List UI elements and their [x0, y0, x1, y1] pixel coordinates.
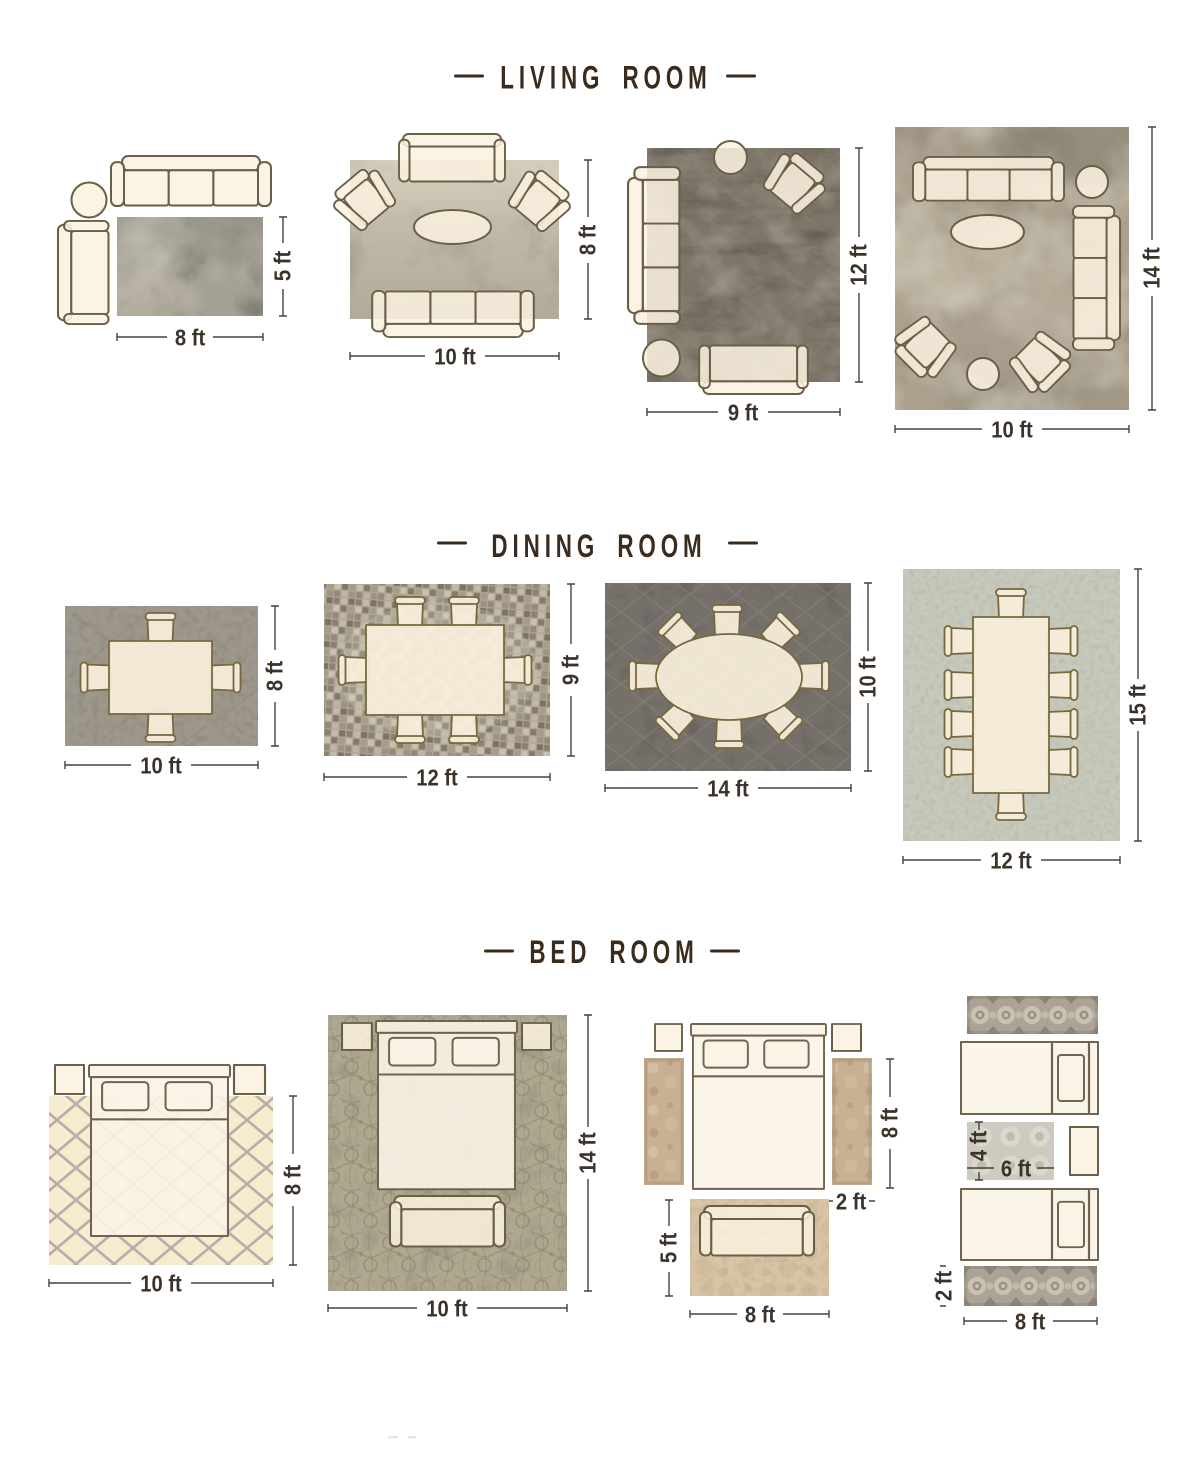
svg-text:10 ft: 10 ft — [991, 416, 1033, 443]
svg-text:4 ft: 4 ft — [965, 1131, 992, 1161]
svg-text:8 ft: 8 ft — [574, 225, 601, 255]
svg-text:8 ft: 8 ft — [1015, 1308, 1045, 1335]
svg-text:10 ft: 10 ft — [854, 656, 881, 698]
svg-text:5 ft: 5 ft — [269, 251, 296, 281]
svg-text:8 ft: 8 ft — [876, 1108, 903, 1138]
svg-text:8 ft: 8 ft — [745, 1301, 775, 1328]
svg-text:6 ft: 6 ft — [1001, 1155, 1031, 1182]
svg-text:15 ft: 15 ft — [1124, 684, 1151, 726]
svg-text:10 ft: 10 ft — [140, 1270, 182, 1297]
svg-text:2 ft: 2 ft — [836, 1188, 866, 1215]
svg-text:5 ft: 5 ft — [655, 1233, 682, 1263]
svg-text:2 ft: 2 ft — [930, 1271, 957, 1301]
svg-text:9 ft: 9 ft — [728, 399, 758, 426]
svg-text:LIVING ROOM: LIVING ROOM — [500, 60, 711, 96]
svg-text:10 ft: 10 ft — [140, 752, 182, 779]
svg-text:8 ft: 8 ft — [279, 1165, 306, 1195]
svg-text:12 ft: 12 ft — [416, 764, 458, 791]
svg-text:14 ft: 14 ft — [1138, 247, 1165, 289]
svg-text:DINING ROOM: DINING ROOM — [491, 528, 706, 564]
svg-text:12 ft: 12 ft — [845, 244, 872, 286]
svg-text:BED ROOM: BED ROOM — [529, 934, 698, 970]
svg-text:10 ft: 10 ft — [426, 1295, 468, 1322]
svg-text:9 ft: 9 ft — [557, 655, 584, 685]
svg-text:12 ft: 12 ft — [990, 847, 1032, 874]
svg-text:14 ft: 14 ft — [574, 1132, 601, 1174]
svg-text:14 ft: 14 ft — [707, 775, 749, 802]
svg-text:10 ft: 10 ft — [434, 343, 476, 370]
svg-text:8 ft: 8 ft — [175, 324, 205, 351]
svg-text:8 ft: 8 ft — [261, 661, 288, 691]
